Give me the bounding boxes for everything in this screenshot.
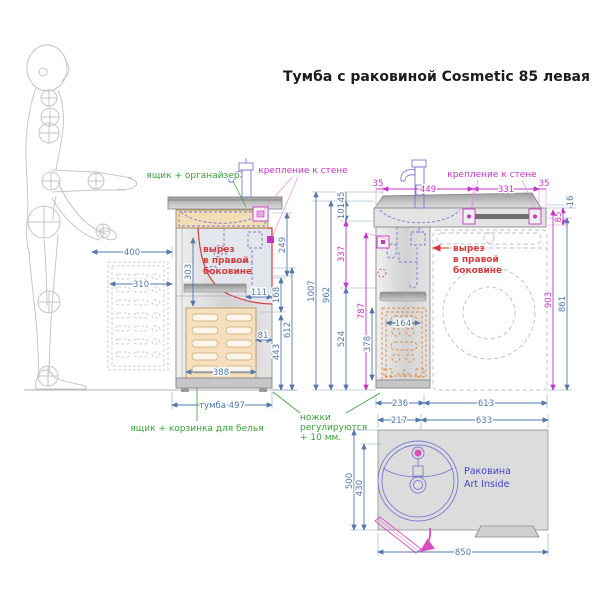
dim-378: 378 bbox=[363, 336, 373, 352]
dim-cabinet-497: тумба 497 bbox=[199, 401, 245, 411]
front-plinth bbox=[376, 380, 430, 388]
dim-164: 164 bbox=[395, 319, 411, 329]
svg-text:в правой: в правой bbox=[453, 255, 499, 265]
dim-217: 217 bbox=[391, 416, 407, 426]
label-wall-mount-side: крепление к стене bbox=[258, 166, 348, 176]
dim-388: 388 bbox=[213, 368, 229, 378]
label-sink-brand-1: Раковина bbox=[464, 466, 511, 477]
dim-612: 612 bbox=[283, 322, 293, 338]
dim-310: 310 bbox=[133, 280, 149, 290]
side-plinth bbox=[176, 378, 272, 388]
dim-861: 861 bbox=[558, 296, 568, 312]
dim-500: 500 bbox=[345, 473, 355, 489]
dim-443: 443 bbox=[272, 344, 282, 360]
dim-16: 16 bbox=[566, 196, 576, 207]
front-countertop-top bbox=[375, 193, 541, 208]
dim-249: 249 bbox=[278, 237, 288, 253]
dim-35-left: 35 bbox=[373, 179, 384, 189]
dim-613: 613 bbox=[478, 399, 494, 409]
dim-962: 962 bbox=[322, 287, 332, 303]
dim-337: 337 bbox=[337, 246, 347, 262]
page-title: Тумба с раковиной Cosmetic 85 левая bbox=[283, 69, 590, 85]
label-laundry-basket: ящик + корзинка для белья bbox=[130, 424, 263, 434]
dim-400: 400 bbox=[124, 248, 140, 258]
dim-236: 236 bbox=[392, 399, 408, 409]
washer-pedestal bbox=[475, 526, 539, 537]
svg-text:боковине: боковине bbox=[203, 266, 252, 277]
dim-331: 331 bbox=[498, 185, 514, 195]
svg-text:ножки: ножки bbox=[300, 413, 331, 423]
vanity-drawing-svg: Тумба с раковиной Cosmetic 85 левая bbox=[0, 0, 600, 600]
dim-524: 524 bbox=[337, 331, 347, 347]
countertop-plan bbox=[378, 430, 548, 530]
svg-text:боковине: боковине bbox=[453, 265, 502, 276]
svg-text:вырез: вырез bbox=[203, 245, 235, 255]
dim-1007: 1007 bbox=[307, 280, 317, 302]
dim-35-right: 35 bbox=[539, 179, 550, 189]
label-drawer-organizer: ящик + органайзер bbox=[146, 171, 239, 181]
dim-45: 45 bbox=[337, 192, 347, 203]
dim-303: 303 bbox=[184, 264, 194, 280]
dim-168: 168 bbox=[272, 287, 282, 303]
side-foot-left bbox=[181, 388, 189, 392]
technical-drawing-page: Тумба с раковиной Cosmetic 85 левая bbox=[0, 0, 600, 600]
side-foot-right bbox=[259, 388, 267, 392]
side-wall-bracket-bottom bbox=[267, 236, 274, 243]
svg-text:регулируются: регулируются bbox=[300, 423, 367, 433]
dim-903: 903 bbox=[544, 292, 554, 308]
dim-111: 111 bbox=[251, 288, 267, 298]
dim-787: 787 bbox=[357, 303, 367, 319]
dim-101: 101 bbox=[337, 203, 347, 219]
dim-850: 850 bbox=[455, 548, 471, 558]
label-sink-brand-2: Art Inside bbox=[464, 479, 510, 490]
dim-633: 633 bbox=[476, 416, 492, 426]
svg-text:+ 10 мм.: + 10 мм. bbox=[300, 433, 341, 443]
dim-449: 449 bbox=[420, 185, 436, 195]
dim-85: 85 bbox=[554, 212, 564, 223]
svg-text:в правой: в правой bbox=[203, 256, 249, 266]
svg-text:вырез: вырез bbox=[453, 244, 485, 254]
dim-430: 430 bbox=[355, 480, 365, 496]
label-wall-mount-front: крепление к стене bbox=[447, 170, 537, 180]
front-drawer-handle bbox=[380, 292, 426, 301]
dim-81: 81 bbox=[258, 331, 269, 341]
